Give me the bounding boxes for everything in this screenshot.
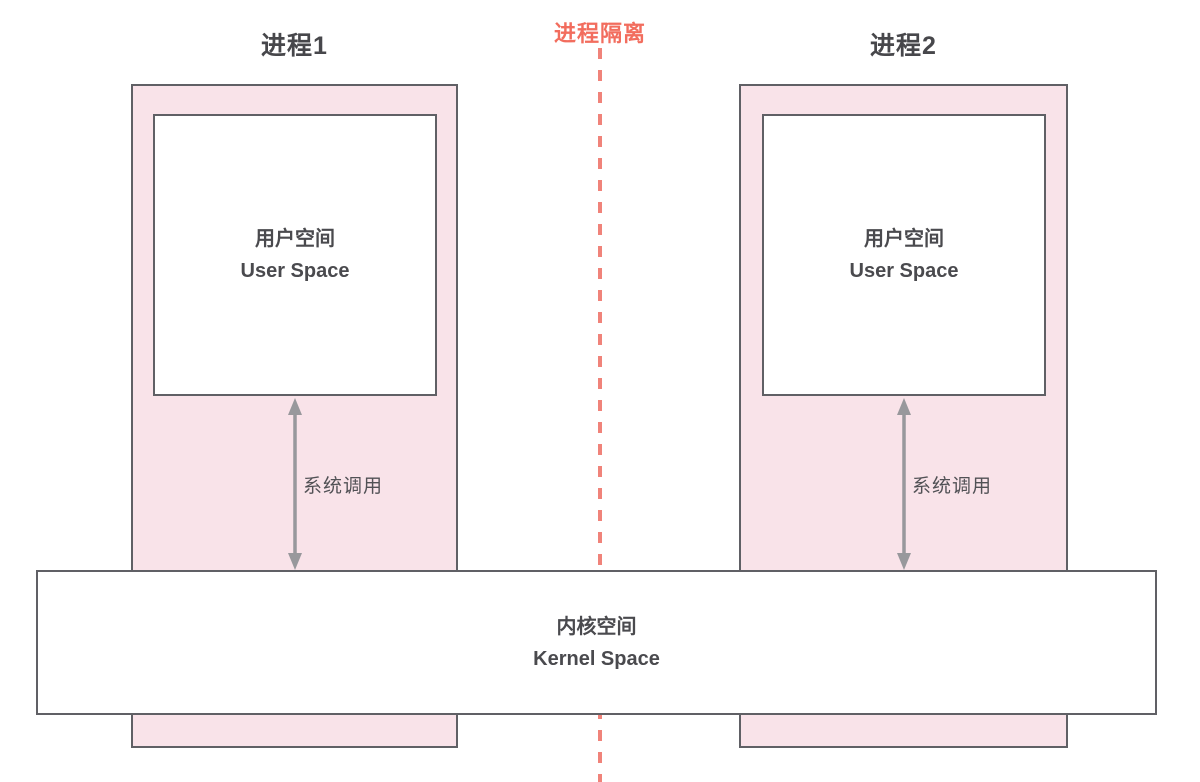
process2-syscall-label: 系统调用 [912, 471, 992, 498]
arrow-head-up [897, 398, 911, 415]
user-space-label-zh: 用户空间 [255, 223, 335, 255]
kernel-space-label-zh: 内核空间 [557, 611, 637, 643]
user-space-label-zh: 用户空间 [864, 223, 944, 255]
process2-title: 进程2 [739, 26, 1068, 62]
process1-title: 进程1 [131, 26, 458, 62]
process-isolation-label: 进程隔离 [450, 16, 750, 48]
arrow-head-down [897, 553, 911, 570]
arrow-head-down [288, 553, 302, 570]
kernel-space-label-en: Kernel Space [533, 643, 660, 675]
process-isolation-diagram: 进程1 进程2 进程隔离 用户空间 User Space 系统调用 用户空间 U… [0, 0, 1200, 782]
process1-syscall-label: 系统调用 [303, 471, 383, 498]
user-space-label-en: User Space [850, 255, 959, 287]
process2-user-space-box: 用户空间 User Space [762, 114, 1046, 396]
process1-user-space-box: 用户空间 User Space [153, 114, 437, 396]
arrow-head-up [288, 398, 302, 415]
user-space-label-en: User Space [241, 255, 350, 287]
kernel-space-box: 内核空间 Kernel Space [36, 570, 1157, 715]
